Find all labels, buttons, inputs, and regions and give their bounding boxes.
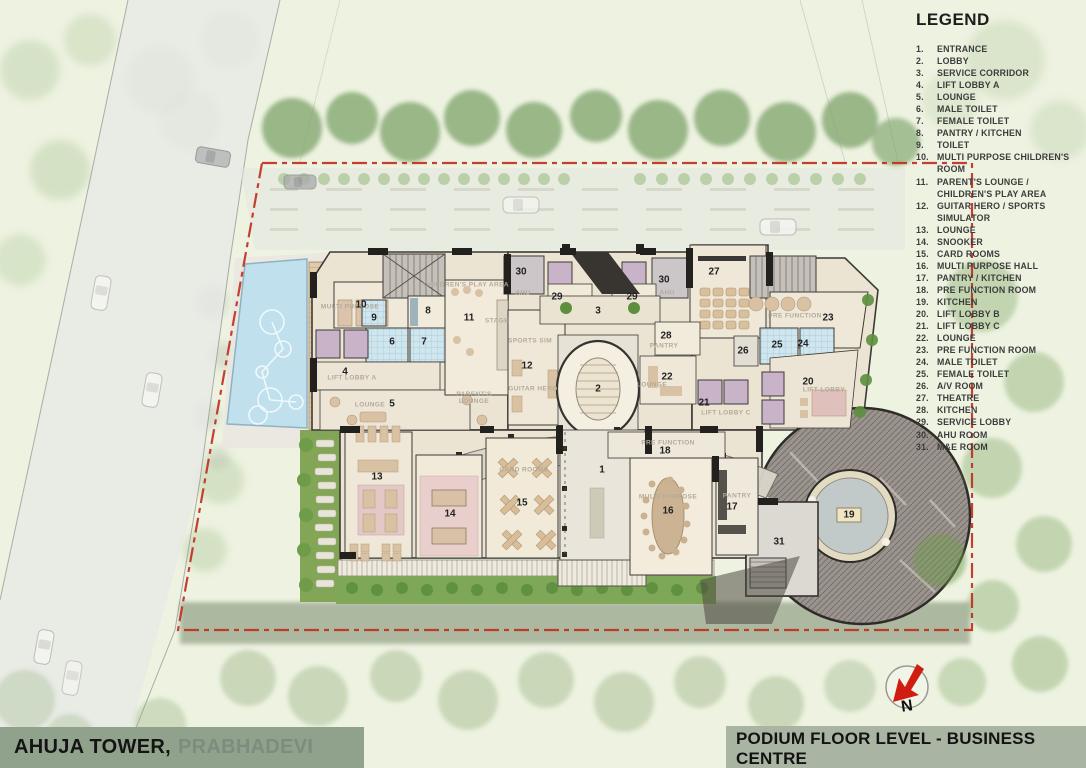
legend-item-15: 15.CARD ROOMS — [916, 248, 1086, 260]
legend-item-12: 12.GUITAR HERO / SPORTS SIMULATOR — [916, 200, 1086, 224]
legend-item-20: 20.LIFT LOBBY B — [916, 308, 1086, 320]
plan-label: LOUNGE — [637, 382, 667, 389]
legend-item-2: 2.LOBBY — [916, 55, 1086, 67]
plan-label: MULTI PURPOSE — [639, 494, 697, 501]
project-title-bar: AHUJA TOWER, PRABHADEVI — [0, 727, 364, 768]
room-marker-20: 20 — [802, 377, 813, 388]
legend-item-24: 24.MALE TOILET — [916, 356, 1086, 368]
room-marker-3: 3 — [595, 306, 601, 317]
room-marker-29: 29 — [626, 292, 637, 303]
legend-title: LEGEND — [916, 10, 1086, 30]
room-marker-17: 17 — [726, 502, 737, 513]
legend-item-27: 27.THEATRE — [916, 392, 1086, 404]
room-marker-15: 15 — [516, 498, 527, 509]
legend-item-1: 1.ENTRANCE — [916, 43, 1086, 55]
top-tree-row — [262, 90, 920, 166]
site-plan-page: AHUAHUSPORTS SIMGUITAR HEROSTAGELIFT LOB… — [0, 0, 1086, 768]
project-name: AHUJA TOWER, — [14, 736, 171, 759]
plan-label: CHILDREN'S PLAY AREA — [423, 282, 509, 289]
room-marker-14: 14 — [444, 509, 455, 520]
room-marker-13: 13 — [371, 472, 382, 483]
plan-label: CARD ROOMS — [499, 467, 548, 474]
legend-item-4: 4.LIFT LOBBY A — [916, 79, 1086, 91]
room-marker-18: 18 — [659, 446, 670, 457]
plan-label: PRE FUNCTION — [768, 313, 822, 320]
plan-label: LIFT LOBBY — [803, 387, 845, 394]
legend-item-14: 14.SNOOKER — [916, 236, 1086, 248]
plan-label: LOUNGE — [355, 402, 385, 409]
room-marker-5: 5 — [389, 399, 395, 410]
plan-label: SPORTS SIM — [508, 338, 552, 345]
legend-item-31: 31.M&E ROOM — [916, 441, 1086, 453]
room-marker-7: 7 — [421, 337, 427, 348]
west-garden-strip — [297, 430, 342, 602]
legend-item-11: 11.PARENT'S LOUNGE / CHILDREN'S PLAY ARE… — [916, 176, 1086, 200]
plan-label: LIFT LOBBY C — [701, 410, 750, 417]
room-marker-21: 21 — [698, 398, 709, 409]
legend-item-30: 30.AHU ROOM — [916, 429, 1086, 441]
legend-item-16: 16.MULTI PURPOSE HALL — [916, 260, 1086, 272]
drawing-title-bar: PODIUM FLOOR LEVEL - BUSINESS CENTRE 0 5… — [726, 726, 1086, 768]
legend-item-13: 13.LOUNGE — [916, 224, 1086, 236]
room-marker-8: 8 — [425, 306, 431, 317]
plan-label: PARENT'S LOUNGE — [451, 391, 497, 405]
legend-item-17: 17.PANTRY / KITCHEN — [916, 272, 1086, 284]
legend-item-28: 28.KITCHEN — [916, 404, 1086, 416]
room-marker-26: 26 — [737, 346, 748, 357]
male-toilet-6 — [366, 328, 408, 362]
legend-item-10: 10.MULTI PURPOSE CHILDREN'S ROOM — [916, 151, 1086, 175]
room-marker-27: 27 — [708, 267, 719, 278]
room-marker-2: 2 — [595, 384, 601, 395]
legend-item-22: 22.LOUNGE — [916, 332, 1086, 344]
legend-item-19: 19.KITCHEN — [916, 296, 1086, 308]
room-marker-1: 1 — [599, 465, 605, 476]
legend-item-21: 21.LIFT LOBBY C — [916, 320, 1086, 332]
north-label: N — [900, 697, 914, 716]
plan-label: GUITAR HERO — [508, 386, 557, 393]
room-marker-6: 6 — [389, 337, 395, 348]
plan-label: PANTRY — [650, 343, 678, 350]
legend-item-25: 25.FEMALE TOILET — [916, 368, 1086, 380]
plan-label: LIFT LOBBY A — [327, 375, 376, 382]
legend-item-18: 18.PRE FUNCTION ROOM — [916, 284, 1086, 296]
room-marker-19: 19 — [836, 508, 861, 523]
plan-label: AHU — [659, 290, 674, 297]
legend-item-7: 7.FEMALE TOILET — [916, 115, 1086, 127]
room-marker-29: 29 — [551, 292, 562, 303]
legend-item-23: 23.PRE FUNCTION ROOM — [916, 344, 1086, 356]
legend-item-29: 29.SERVICE LOBBY — [916, 416, 1086, 428]
legend-item-9: 9.TOILET — [916, 139, 1086, 151]
room-marker-11: 11 — [464, 313, 475, 324]
room-marker-30: 30 — [515, 267, 526, 278]
room-marker-4: 4 — [342, 367, 348, 378]
room-marker-31: 31 — [773, 537, 784, 548]
room-marker-16: 16 — [662, 506, 673, 517]
room-marker-30: 30 — [658, 275, 669, 286]
plan-label: STAGE — [485, 318, 509, 325]
legend-item-8: 8.PANTRY / KITCHEN — [916, 127, 1086, 139]
room-marker-9: 9 — [371, 313, 377, 324]
room-marker-10: 10 — [355, 300, 366, 311]
drawing-title: PODIUM FLOOR LEVEL - BUSINESS CENTRE — [736, 729, 1086, 768]
room-marker-23: 23 — [822, 313, 833, 324]
room-marker-12: 12 — [521, 361, 532, 372]
legend-panel: LEGEND 1.ENTRANCE2.LOBBY3.SERVICE CORRID… — [916, 10, 1086, 453]
room-marker-28: 28 — [660, 331, 671, 342]
plan-label: PANTRY — [723, 493, 751, 500]
plan-label: MULTI PURPOSE — [321, 304, 379, 311]
plan-label: AHU — [515, 290, 530, 297]
legend-item-26: 26.A/V ROOM — [916, 380, 1086, 392]
legend-item-3: 3.SERVICE CORRIDOR — [916, 67, 1086, 79]
room-marker-22: 22 — [661, 372, 672, 383]
legend-item-5: 5.LOUNGE — [916, 91, 1086, 103]
room-marker-25: 25 — [771, 340, 782, 351]
legend-item-6: 6.MALE TOILET — [916, 103, 1086, 115]
project-location: PRABHADEVI — [178, 736, 313, 759]
room-marker-24: 24 — [797, 339, 808, 350]
